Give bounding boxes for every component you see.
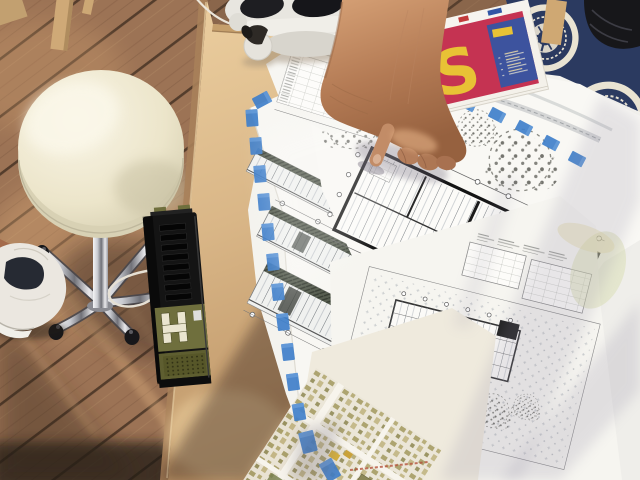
photo-scene: S xyxy=(0,0,640,480)
stool-column xyxy=(93,226,108,308)
